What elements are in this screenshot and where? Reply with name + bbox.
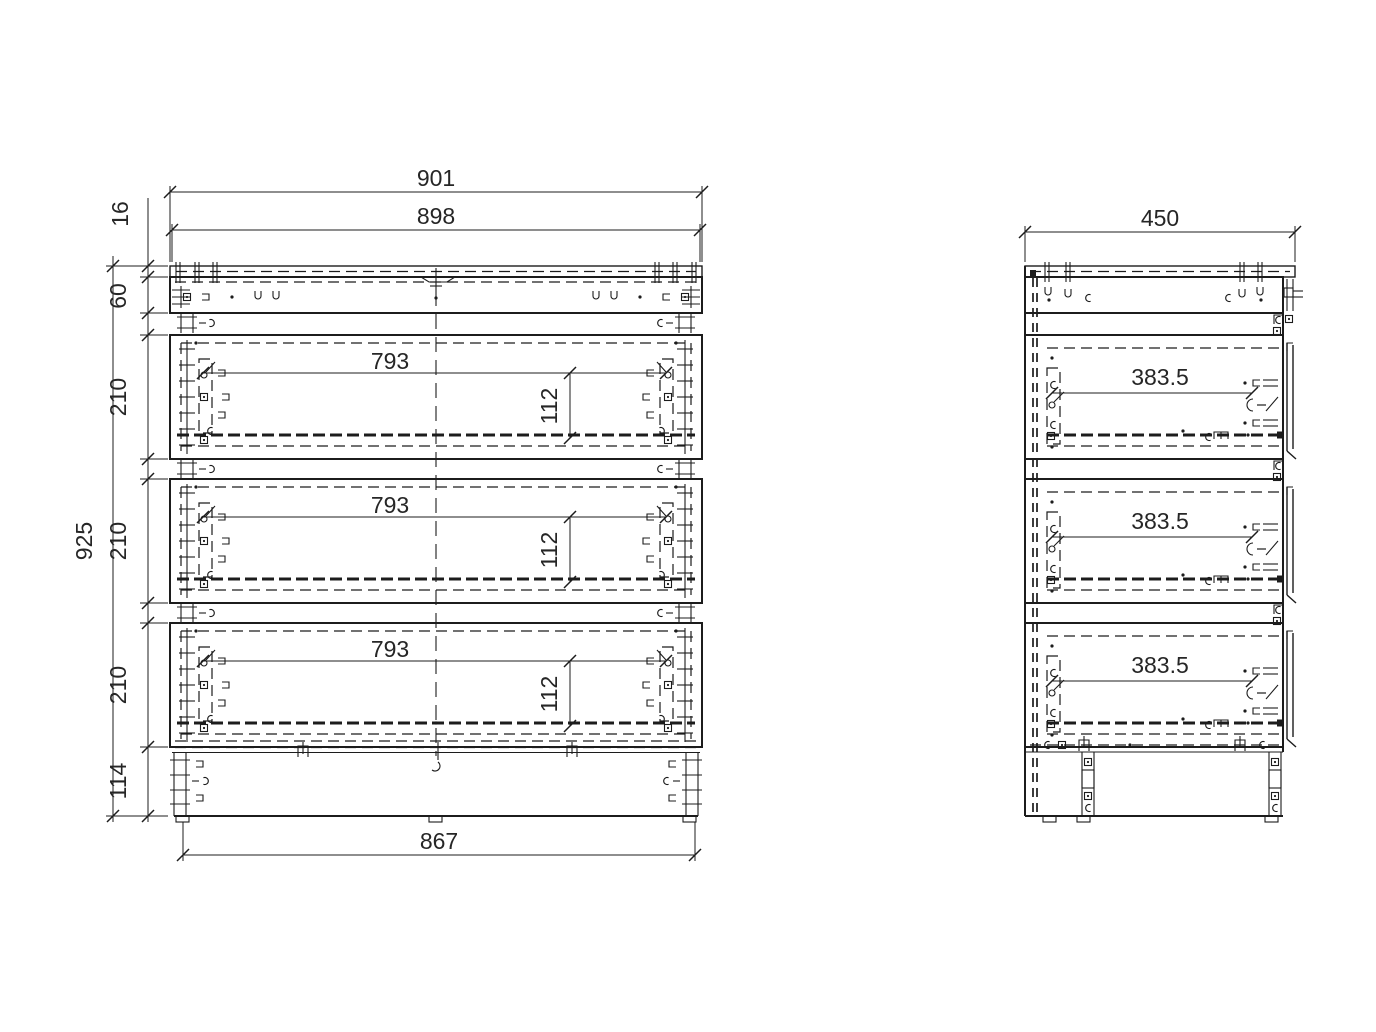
dim-base-width: 867: [420, 828, 458, 854]
dim-overall-width: 901: [417, 165, 455, 191]
dim-drawer-depth-3: 383.5: [1131, 652, 1189, 678]
dim-drawer-height-2: 210: [105, 522, 131, 560]
furniture-assembly-drawing: 901 898 16 60 925 210 210 210 114 867 79…: [0, 0, 1376, 1032]
dim-top-rail-height: 60: [105, 283, 131, 309]
dim-drawer-width-2: 793: [371, 492, 409, 518]
dim-drawer-box-height-3: 112: [536, 676, 562, 713]
dim-drawer-box-height-2: 112: [536, 532, 562, 569]
dim-drawer-width-1: 793: [371, 348, 409, 374]
side-dim-lines: [1019, 226, 1301, 262]
dim-overall-height: 925: [71, 522, 97, 560]
front-view: 901 898 16 60 925 210 210 210 114 867 79…: [71, 165, 708, 861]
dim-depth: 450: [1141, 205, 1179, 231]
dim-drawer-box-height-1: 112: [536, 388, 562, 425]
dim-drawer-width-3: 793: [371, 636, 409, 662]
dim-top-panel-thickness: 16: [107, 201, 133, 227]
technical-drawing-page: 901 898 16 60 925 210 210 210 114 867 79…: [0, 0, 1376, 1032]
dim-top-width: 898: [417, 203, 455, 229]
dim-drawer-height-1: 210: [105, 378, 131, 416]
dim-drawer-depth-1: 383.5: [1131, 364, 1189, 390]
dim-plinth-height: 114: [105, 762, 131, 799]
side-view: 450 383.5 383.5 383.5: [1019, 205, 1303, 822]
dim-drawer-depth-2: 383.5: [1131, 508, 1189, 534]
front-dim-lines: [106, 186, 708, 861]
dim-drawer-height-3: 210: [105, 666, 131, 704]
side-plinth: [1025, 736, 1283, 822]
